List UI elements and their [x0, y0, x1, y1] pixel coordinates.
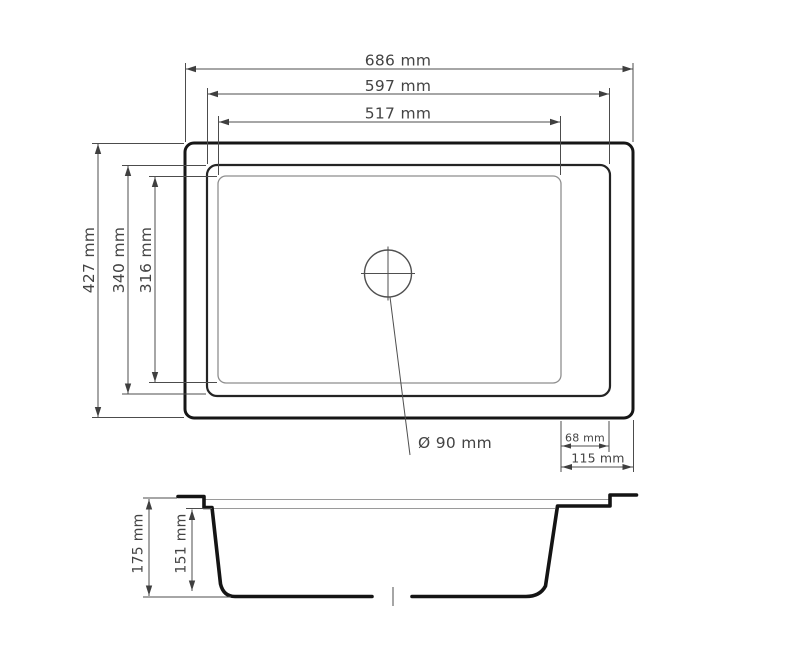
arrowhead: [152, 177, 158, 187]
top-view: Ø 90 mm 686 mm 597 mm 517 mm: [80, 52, 634, 473]
bowl-width-label: 517 mm: [365, 105, 432, 123]
overall-height-label: 175 mm: [131, 513, 147, 573]
dim-overall-width: 686 mm: [186, 52, 634, 143]
arrowhead: [623, 66, 633, 72]
rim-depth-label: 340 mm: [110, 227, 128, 294]
arrowhead: [219, 119, 229, 125]
bowl-inner-depth-label: 151 mm: [174, 513, 190, 573]
arrowhead: [125, 166, 131, 176]
bowl-profile-left: [178, 497, 372, 597]
section-view: 175 mm 151 mm: [131, 495, 637, 606]
bowl-bottom-outline: [218, 176, 561, 383]
bowl-rim-outline: [207, 165, 610, 396]
arrowhead: [186, 66, 196, 72]
arrowhead: [146, 500, 152, 510]
dim-bowl-inner-depth: 151 mm: [174, 509, 213, 592]
arrowhead: [152, 372, 158, 382]
arrowhead: [125, 384, 131, 394]
arrowhead: [208, 91, 218, 97]
drain-edge-offset-label: 115 mm: [571, 451, 624, 466]
arrowhead: [189, 510, 195, 520]
drain-symbol: Ø 90 mm: [361, 247, 492, 456]
overall-width-label: 686 mm: [365, 52, 432, 70]
dim-bowl-depth: 316 mm: [137, 177, 217, 383]
sink-outer-outline: [185, 143, 633, 418]
dim-right-offsets: 68 mm 115 mm: [561, 420, 634, 472]
drain-diameter-label: Ø 90 mm: [418, 434, 492, 452]
sink-dimension-diagram: Ø 90 mm 686 mm 597 mm 517 mm: [0, 0, 800, 658]
dim-rim-depth: 340 mm: [110, 166, 206, 395]
dim-overall-depth: 427 mm: [80, 144, 184, 418]
technical-drawing: Ø 90 mm 686 mm 597 mm 517 mm: [0, 0, 800, 658]
drain-rim-offset-label: 68 mm: [565, 432, 605, 445]
arrowhead: [550, 119, 560, 125]
arrowhead: [189, 581, 195, 591]
overall-depth-label: 427 mm: [80, 227, 98, 294]
bowl-profile-right: [412, 495, 637, 597]
arrowhead: [95, 144, 101, 154]
arrowhead: [599, 91, 609, 97]
bowl-depth-label: 316 mm: [137, 227, 155, 294]
drain-leader-line: [390, 297, 410, 455]
arrowhead: [95, 407, 101, 417]
rim-width-label: 597 mm: [365, 77, 432, 95]
arrowhead: [146, 586, 152, 596]
